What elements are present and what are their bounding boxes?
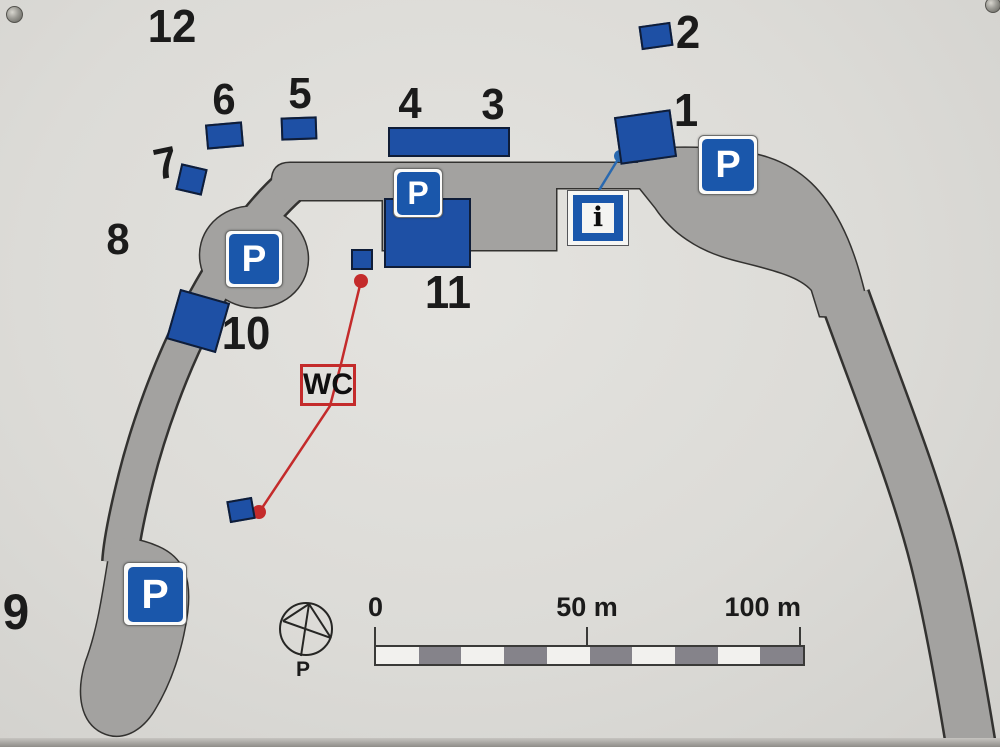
wc-building xyxy=(226,497,255,523)
building-5 xyxy=(281,116,318,140)
site-number-2: 2 xyxy=(676,9,700,55)
parking-icon: P xyxy=(397,172,440,215)
wc-label: WC xyxy=(303,368,353,402)
scale-segment-1 xyxy=(419,647,462,664)
info-icon: i xyxy=(593,204,603,231)
building-1 xyxy=(614,109,677,164)
site-number-8: 8 xyxy=(106,218,129,262)
building-11-annex xyxy=(351,249,373,270)
site-number-5: 5 xyxy=(288,72,311,116)
scale-tick-100 xyxy=(799,627,801,647)
parking-sign-west: P xyxy=(225,230,283,288)
site-number-1: 1 xyxy=(674,87,698,133)
scale-label-50m: 50 m xyxy=(556,592,618,623)
screw-top-right xyxy=(985,0,1000,13)
site-map-board: 122654317810119PPPP i WC 0 50 m 100 m P xyxy=(0,0,1000,747)
scale-label-0: 0 xyxy=(368,592,383,623)
scale-segment-0 xyxy=(376,647,419,664)
information-sign: i xyxy=(567,190,629,246)
site-number-3: 3 xyxy=(481,83,504,127)
parking-icon: P xyxy=(702,139,754,191)
parking-sign-center: P xyxy=(393,168,443,218)
site-number-6: 6 xyxy=(212,78,235,122)
wc-connector-dot-north xyxy=(354,274,368,288)
compass-north-label: P xyxy=(296,658,310,682)
parking-icon: P xyxy=(128,567,183,622)
scale-segment-6 xyxy=(632,647,675,664)
parking-sign-northeast: P xyxy=(698,135,758,195)
building-2 xyxy=(638,22,673,50)
scale-segment-2 xyxy=(461,647,504,664)
scale-segment-4 xyxy=(547,647,590,664)
parking-icon: P xyxy=(229,234,279,284)
parking-sign-south: P xyxy=(123,562,187,626)
building-6 xyxy=(205,121,244,149)
scale-tick-50 xyxy=(586,627,588,647)
scale-segment-8 xyxy=(718,647,761,664)
scale-segment-3 xyxy=(504,647,547,664)
compass-rose xyxy=(280,603,332,656)
site-number-4: 4 xyxy=(398,82,421,126)
scale-bar-segments xyxy=(374,645,805,666)
site-number-12: 12 xyxy=(148,3,197,49)
information-sign-blue: i xyxy=(573,195,623,241)
scale-label-100m: 100 m xyxy=(724,592,801,623)
scale-segment-9 xyxy=(760,647,803,664)
scale-segment-5 xyxy=(590,647,633,664)
board-bottom-edge xyxy=(0,738,1000,747)
scale-segment-7 xyxy=(675,647,718,664)
information-sign-inner: i xyxy=(582,203,614,233)
wc-label-box: WC xyxy=(300,364,356,406)
site-number-10: 10 xyxy=(222,310,271,356)
scale-tick-0 xyxy=(374,627,376,647)
site-number-11: 11 xyxy=(425,269,471,315)
screw-top-left xyxy=(6,6,23,23)
building-3-4 xyxy=(388,127,510,157)
scale-bar: 0 50 m 100 m xyxy=(374,592,801,664)
site-number-9: 9 xyxy=(3,587,29,637)
